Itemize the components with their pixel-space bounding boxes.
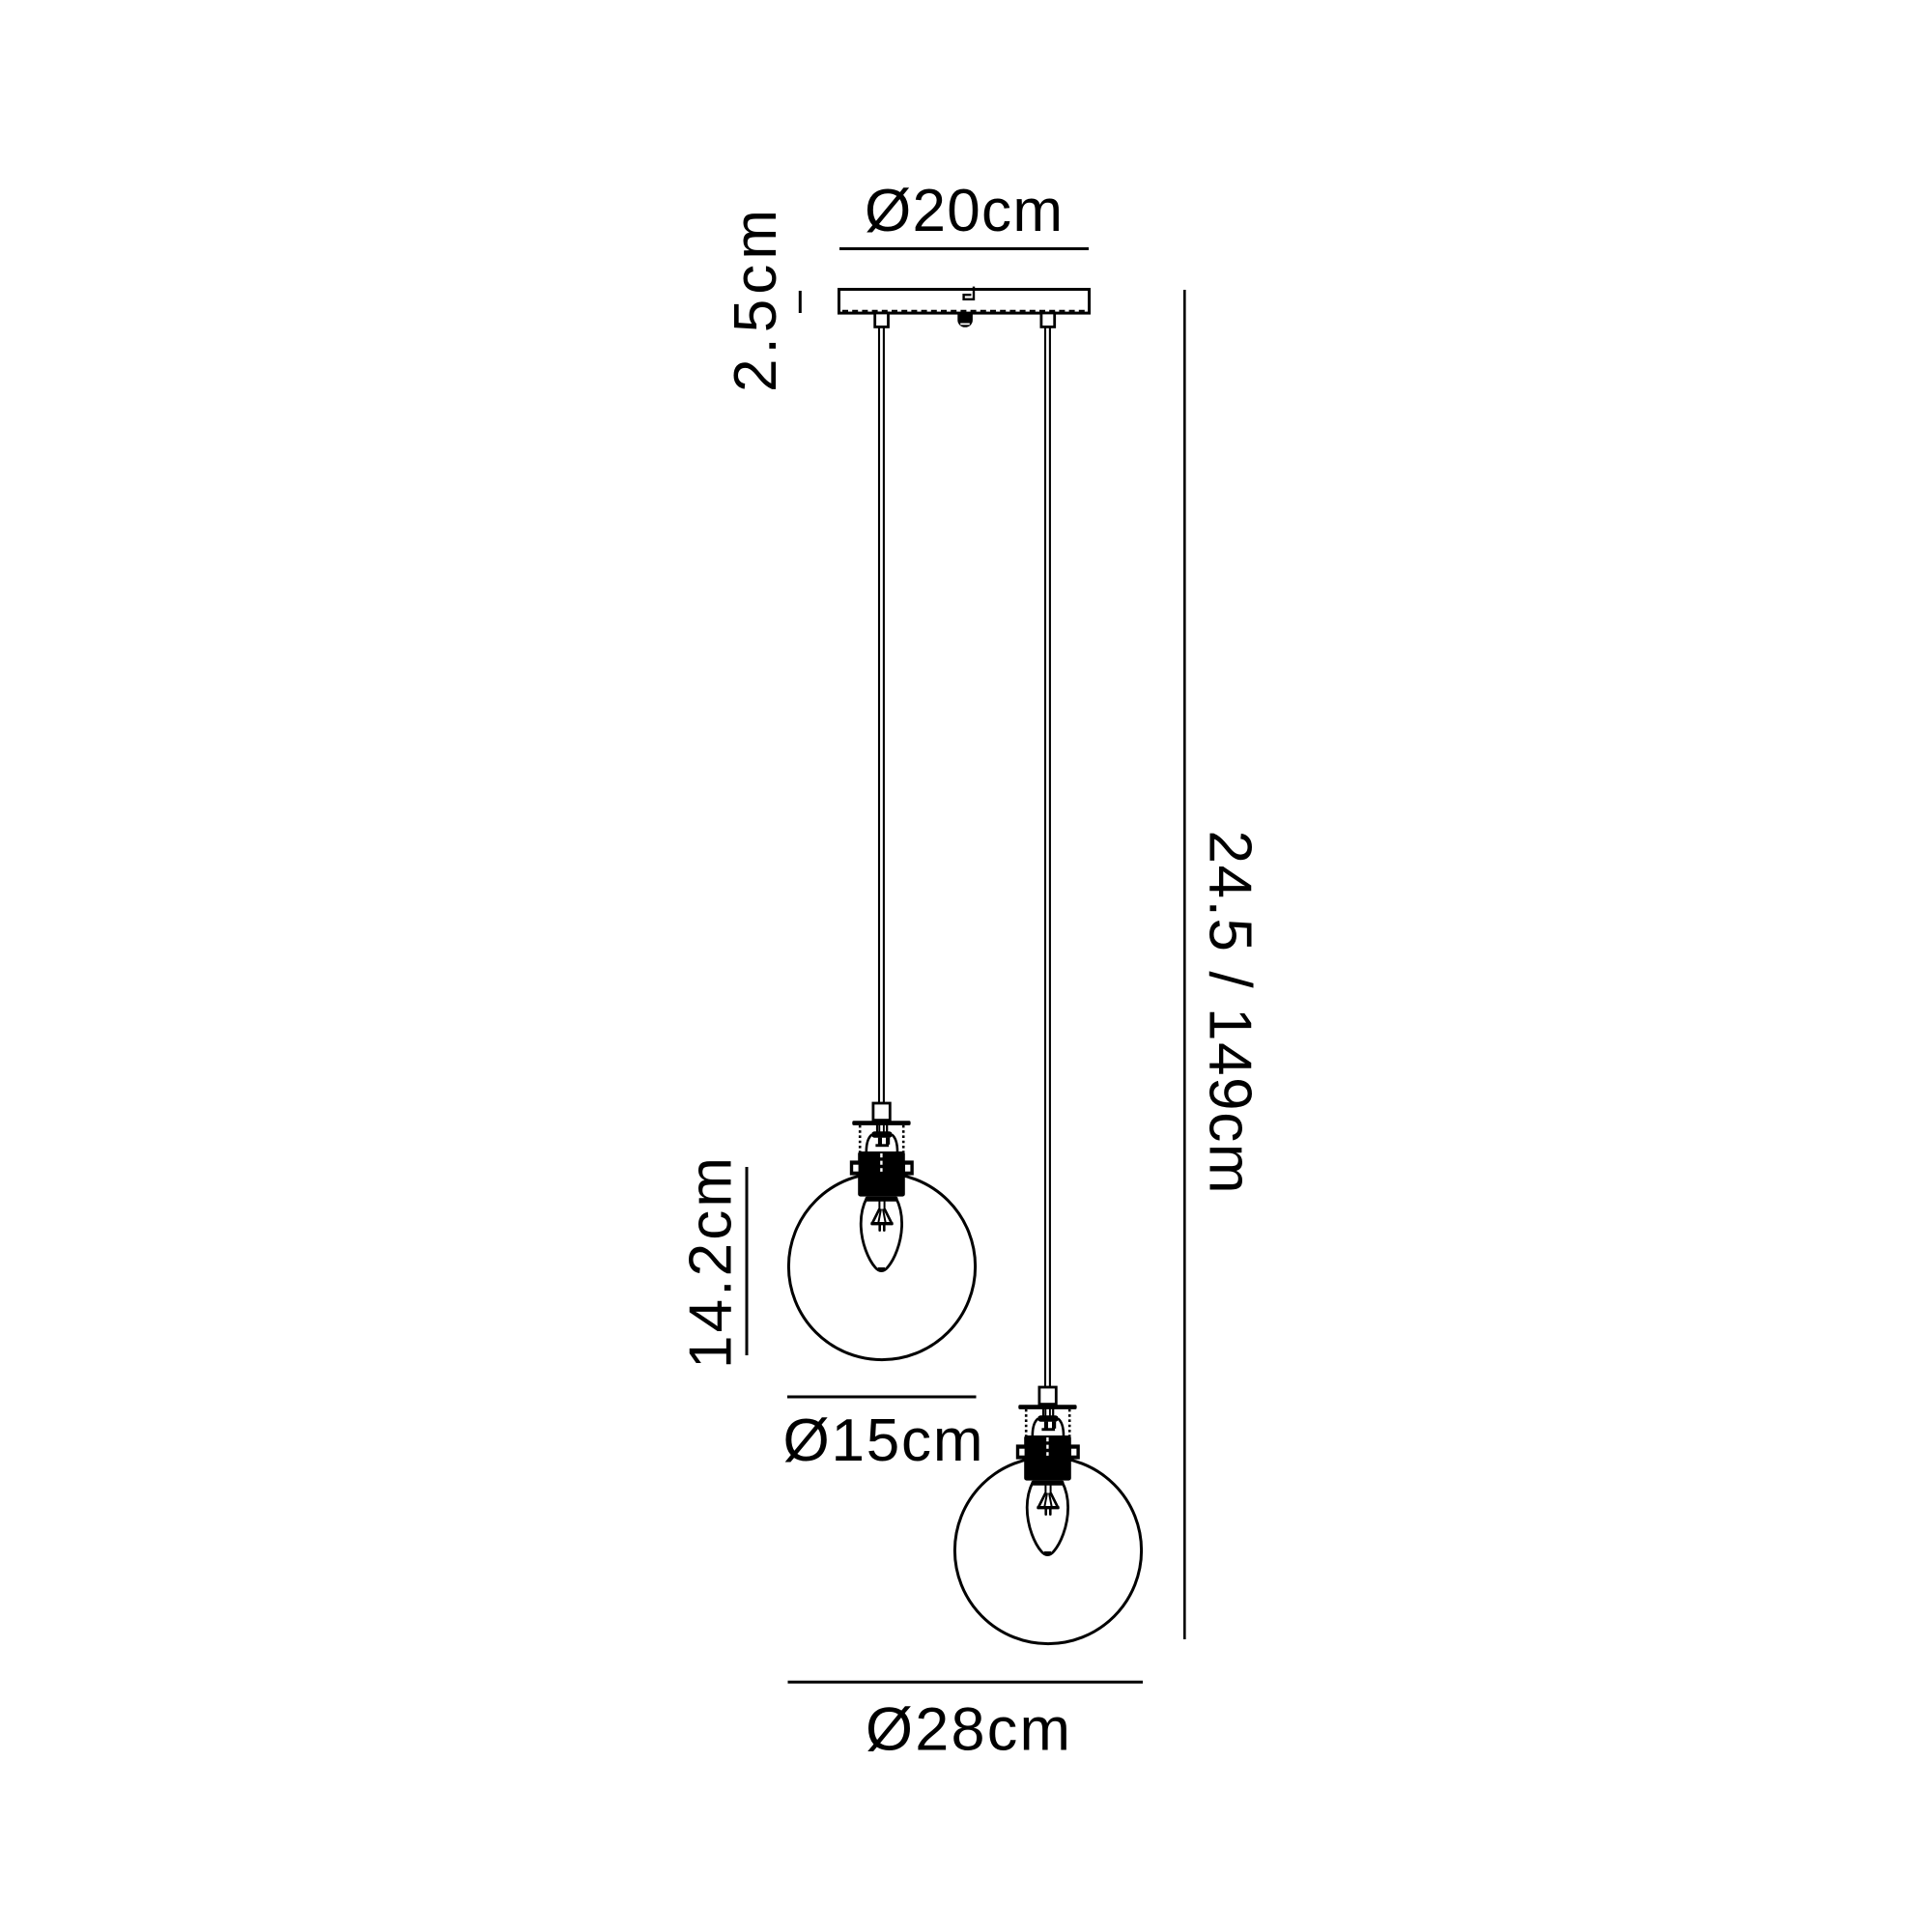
svg-text:Ø15cm: Ø15cm	[783, 1407, 983, 1474]
svg-text:2.5cm: 2.5cm	[723, 210, 789, 392]
svg-text:Ø28cm: Ø28cm	[866, 1696, 1070, 1764]
svg-text:14.2cm: 14.2cm	[678, 1157, 745, 1369]
svg-text:24.5 / 149cm: 24.5 / 149cm	[1197, 831, 1264, 1194]
svg-text:Ø20cm: Ø20cm	[865, 178, 1063, 244]
